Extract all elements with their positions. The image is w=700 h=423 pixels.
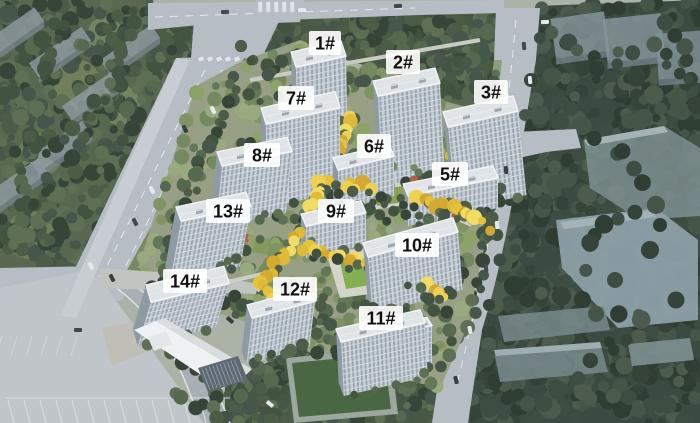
svg-text:5#: 5# xyxy=(440,165,460,185)
svg-text:11#: 11# xyxy=(366,309,395,329)
svg-text:10#: 10# xyxy=(402,236,432,256)
svg-text:1#: 1# xyxy=(315,34,335,54)
svg-text:8#: 8# xyxy=(252,146,272,166)
svg-text:12#: 12# xyxy=(280,280,310,300)
svg-text:2#: 2# xyxy=(393,53,413,73)
svg-text:3#: 3# xyxy=(481,83,501,103)
svg-text:9#: 9# xyxy=(326,202,346,222)
svg-text:7#: 7# xyxy=(286,89,306,109)
svg-text:14#: 14# xyxy=(170,272,200,292)
svg-text:13#: 13# xyxy=(213,202,243,222)
svg-text:6#: 6# xyxy=(364,137,384,157)
